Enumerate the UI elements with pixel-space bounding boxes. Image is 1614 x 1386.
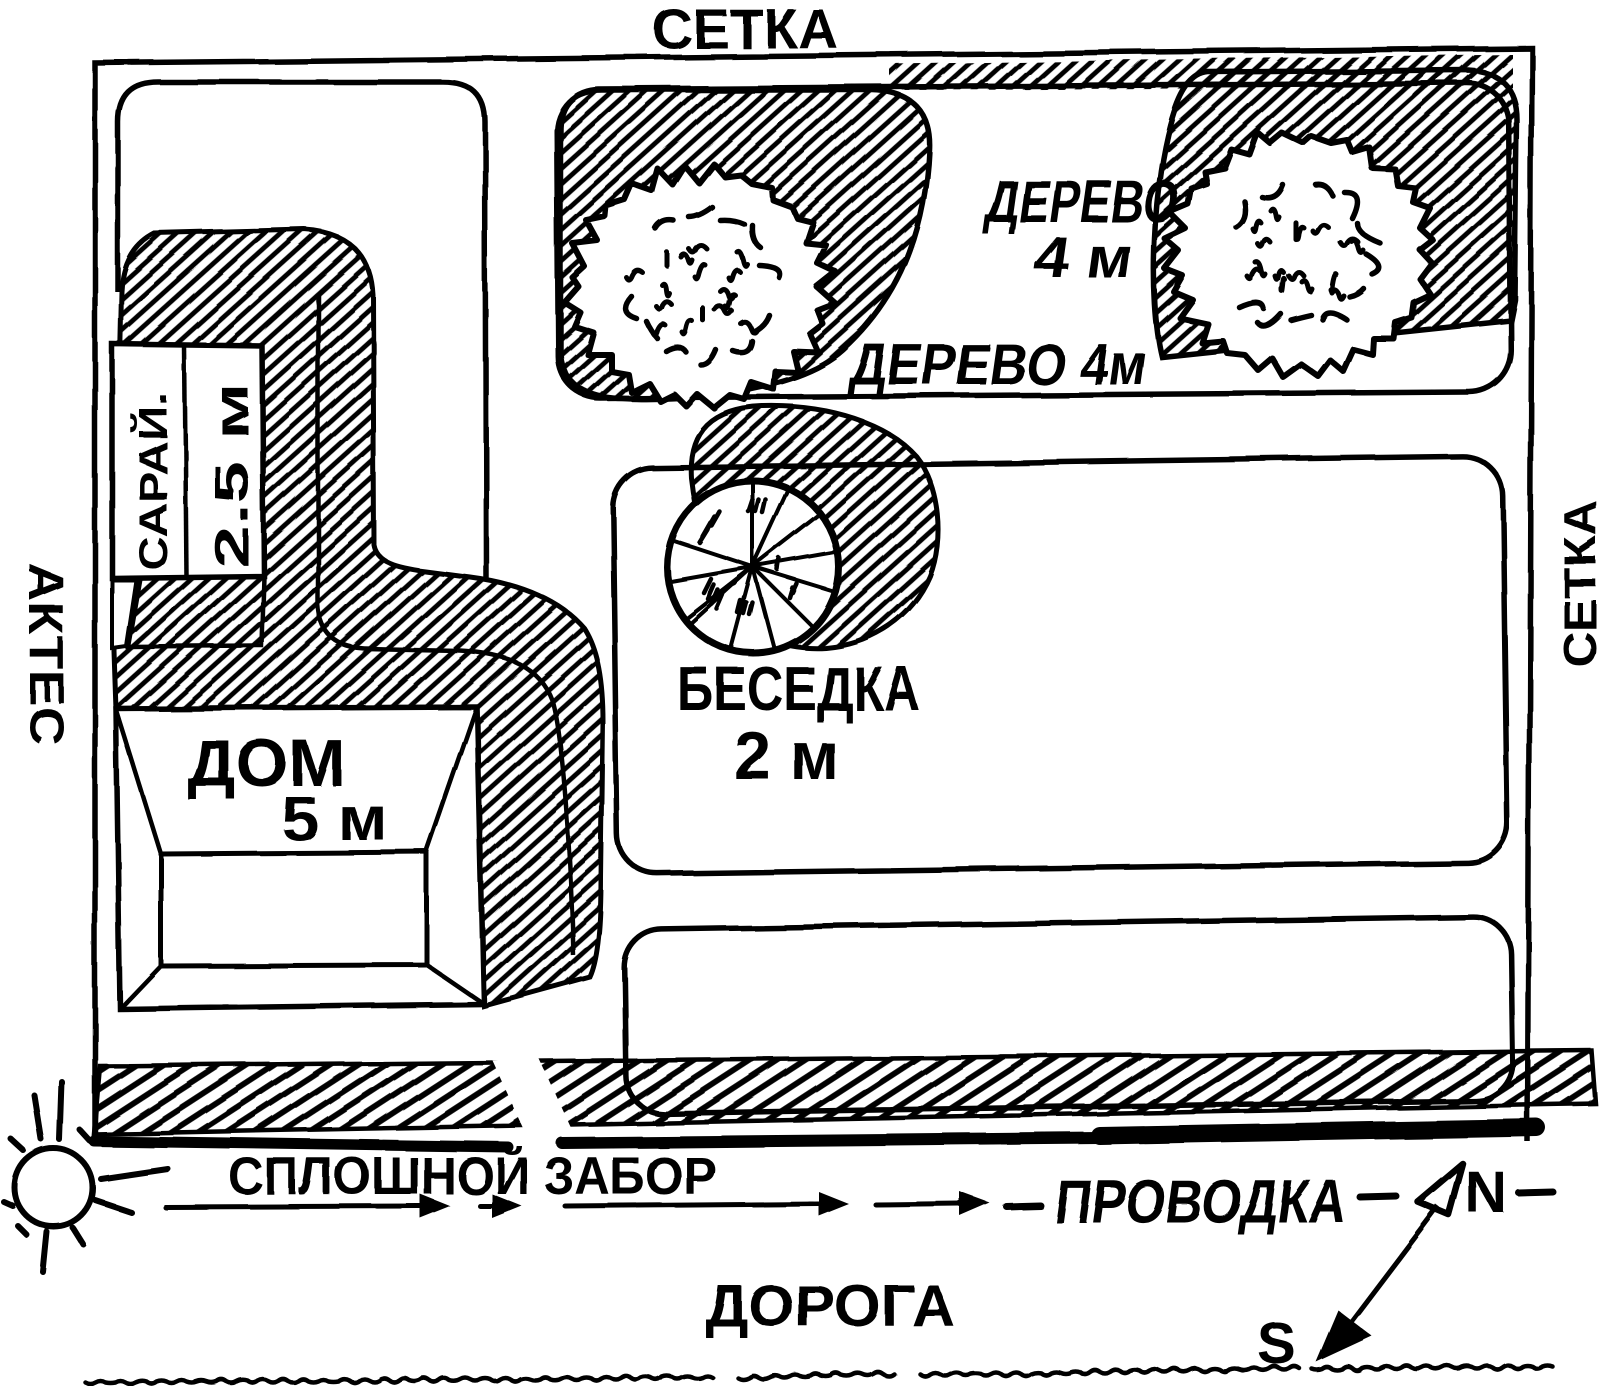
svg-text:САРАЙ.: САРАЙ. (129, 392, 175, 570)
svg-text:2 м: 2 м (734, 718, 839, 794)
svg-text:5 м: 5 м (281, 785, 388, 854)
svg-text:АКТЕС: АКТЕС (19, 563, 72, 745)
svg-text:БЕСЕДКА: БЕСЕДКА (677, 655, 920, 724)
svg-text:2.5 м: 2.5 м (206, 383, 259, 568)
svg-text:ДОРОГА: ДОРОГА (705, 1274, 955, 1339)
svg-text:ДЕРЕВО 4м: ДЕРЕВО 4м (846, 332, 1151, 397)
svg-text:ПРОВОДКА: ПРОВОДКА (1050, 1167, 1352, 1235)
svg-text:4 м: 4 м (1030, 225, 1137, 290)
svg-text:N: N (1465, 1160, 1507, 1225)
svg-text:СЕТКА: СЕТКА (1554, 500, 1606, 668)
svg-text:СЕТКА: СЕТКА (652, 0, 838, 60)
svg-text:СПЛОШНОЙ ЗАБОР: СПЛОШНОЙ ЗАБОР (228, 1145, 716, 1206)
